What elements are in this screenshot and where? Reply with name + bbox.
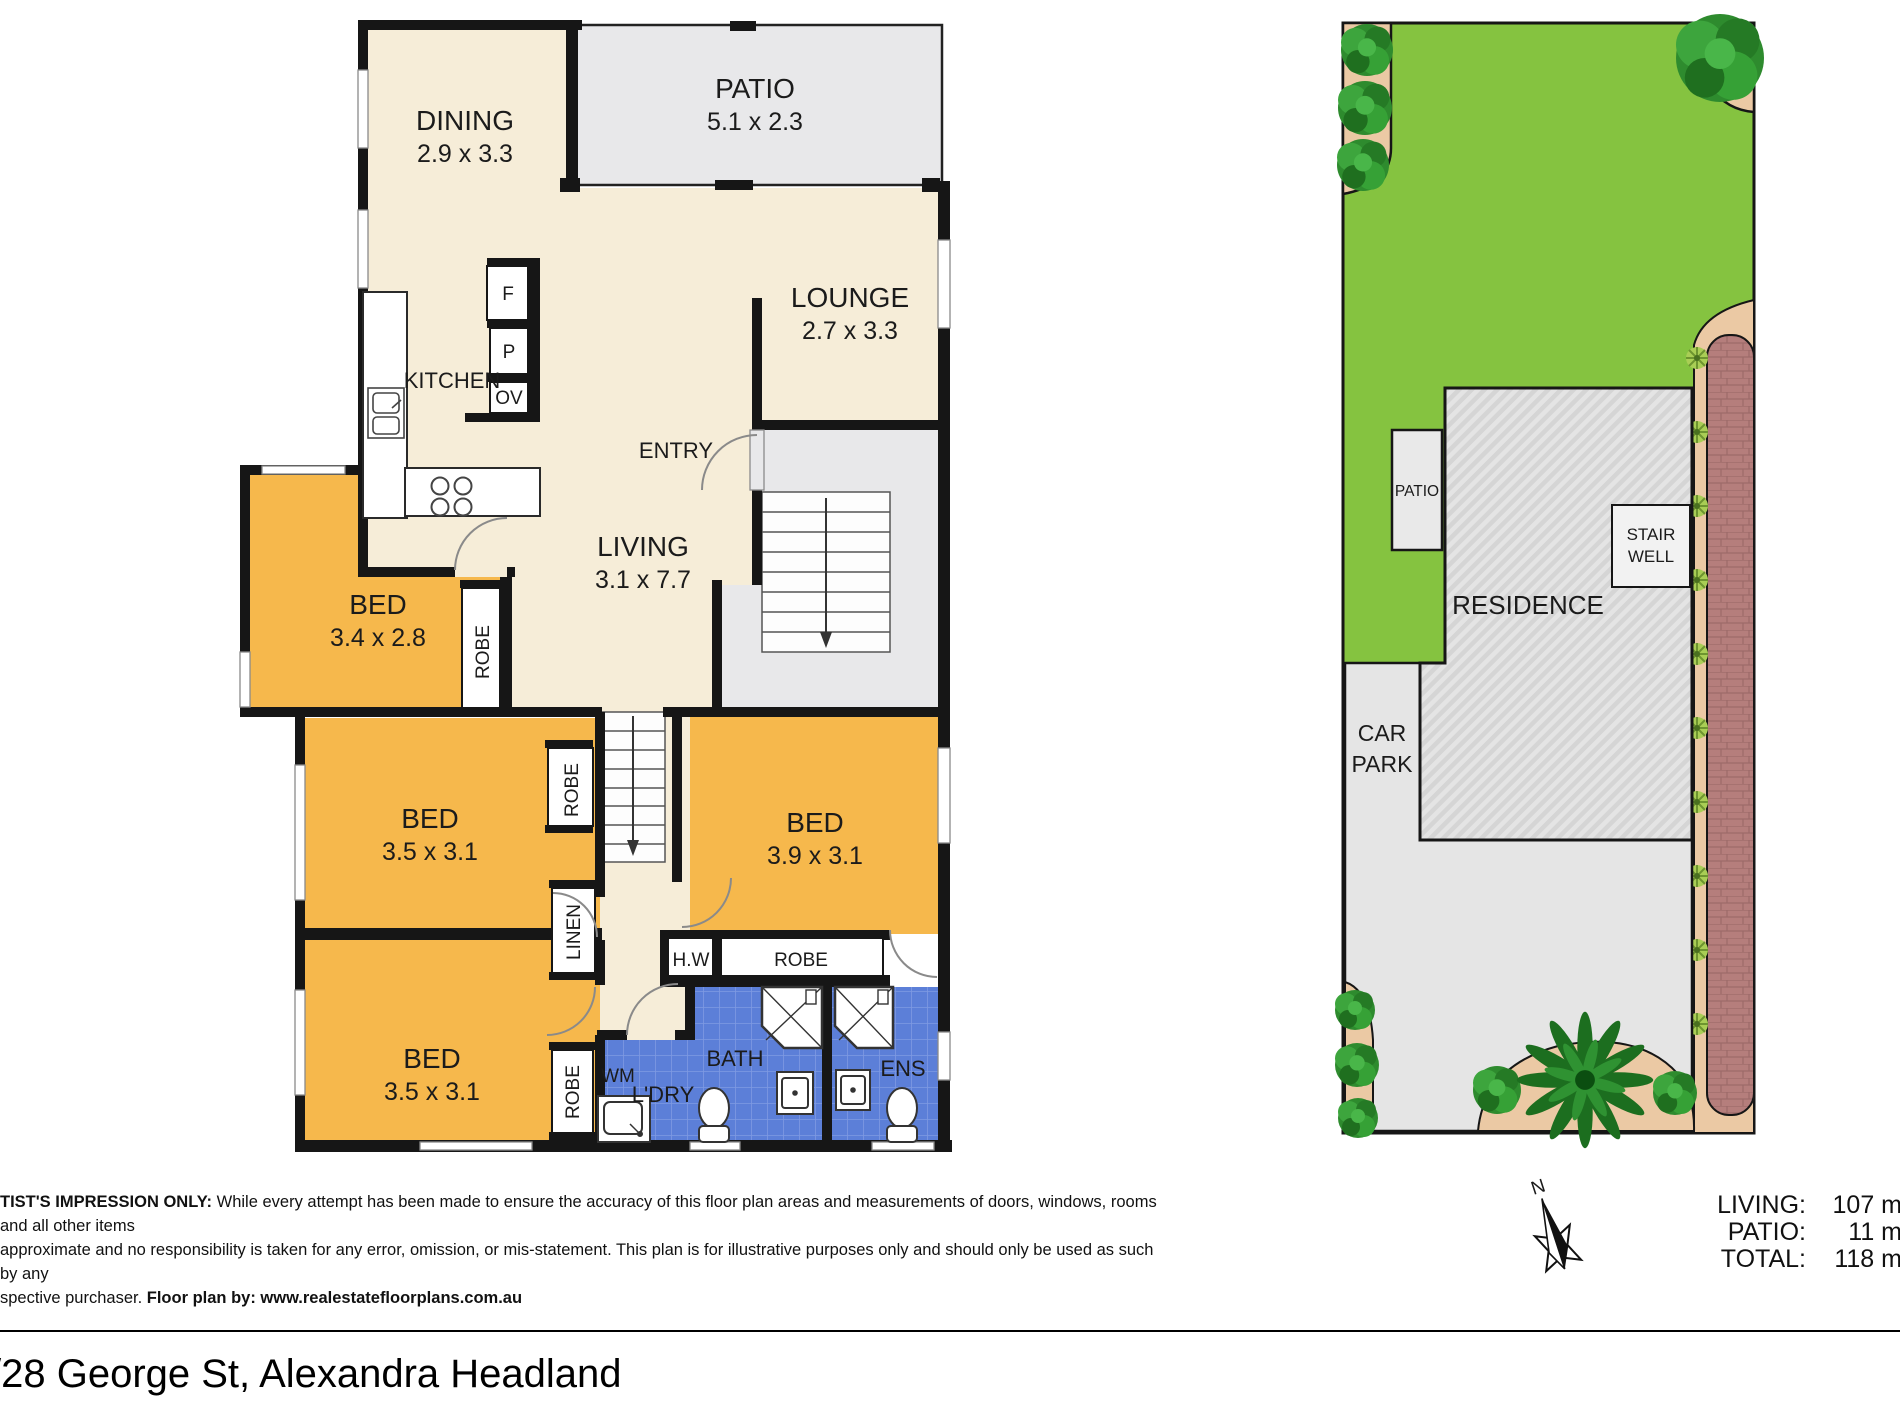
kitchen-sink bbox=[368, 388, 404, 438]
upper-stairs bbox=[762, 492, 890, 652]
address-title: /28 George St, Alexandra Headland bbox=[0, 1352, 622, 1397]
disclaimer-line3-prefix: spective purchaser. bbox=[0, 1289, 147, 1307]
robe-bed4-label: ROBE bbox=[774, 950, 828, 971]
disclaimer-bold-intro: TIST'S IMPRESSION ONLY: bbox=[0, 1193, 212, 1211]
vanity-ens bbox=[836, 1070, 870, 1110]
area-summary: LIVING: 107 m PATIO: 11 m TOTAL: 118 m bbox=[1630, 1192, 1900, 1273]
compass: N bbox=[1500, 1166, 1604, 1294]
patio-floor bbox=[575, 25, 942, 185]
vanity-bath bbox=[777, 1072, 813, 1114]
stairwell-box bbox=[1612, 505, 1690, 587]
patio-label: PATIO bbox=[715, 73, 795, 104]
area-patio-value: 11 m bbox=[1806, 1219, 1900, 1246]
area-total-value: 118 m bbox=[1806, 1246, 1900, 1273]
disclaimer-line2: approximate and no responsibility is tak… bbox=[0, 1241, 1153, 1283]
bed3-label: BED bbox=[403, 1043, 461, 1074]
area-row-patio: PATIO: 11 m bbox=[1630, 1219, 1900, 1246]
bed2-dims: 3.5 x 3.1 bbox=[382, 838, 478, 866]
compass-north-label: N bbox=[1529, 1175, 1549, 1199]
stairwell-label-2: WELL bbox=[1628, 547, 1674, 566]
oven-label: OV bbox=[495, 388, 523, 409]
bed1-label: BED bbox=[349, 589, 407, 620]
robe-bed2-label: ROBE bbox=[562, 763, 583, 817]
area-total-label: TOTAL: bbox=[1721, 1246, 1806, 1273]
wm-label: WM bbox=[601, 1066, 635, 1087]
carpark-label-2: PARK bbox=[1352, 751, 1414, 777]
stairwell-label-1: STAIR bbox=[1627, 525, 1676, 544]
robe-bed3-label: ROBE bbox=[563, 1065, 584, 1119]
ens-label: ENS bbox=[880, 1056, 925, 1081]
patio-dims: 5.1 x 2.3 bbox=[707, 108, 803, 136]
robe-bed1-label: ROBE bbox=[473, 625, 494, 679]
toilet-ens bbox=[887, 1088, 917, 1142]
living-dims: 3.1 x 7.7 bbox=[595, 566, 691, 594]
bed3-dims: 3.5 x 3.1 bbox=[384, 1078, 480, 1106]
lounge-label: LOUNGE bbox=[791, 282, 909, 313]
residence-label: RESIDENCE bbox=[1452, 590, 1604, 620]
laundry-label: L'DRY bbox=[632, 1082, 695, 1107]
toilet-bath bbox=[699, 1088, 729, 1142]
entry-label: ENTRY bbox=[639, 438, 713, 463]
siteplan-patio-label: PATIO bbox=[1395, 483, 1439, 500]
bed1-dims: 3.4 x 2.8 bbox=[330, 624, 426, 652]
living-label: LIVING bbox=[597, 531, 689, 562]
linen-label: LINEN bbox=[564, 904, 585, 960]
carpark-label-1: CAR bbox=[1358, 720, 1407, 746]
floorplan: DINING 2.9 x 3.3 PATIO 5.1 x 2.3 LOUNGE … bbox=[240, 20, 952, 1152]
page: DINING 2.9 x 3.3 PATIO 5.1 x 2.3 LOUNGE … bbox=[0, 0, 1900, 1425]
area-patio-label: PATIO: bbox=[1728, 1219, 1806, 1246]
disclaimer-text: TIST'S IMPRESSION ONLY: While every atte… bbox=[0, 1190, 1160, 1310]
divider-line bbox=[0, 1330, 1900, 1332]
fridge-label: F bbox=[502, 284, 514, 305]
area-row-living: LIVING: 107 m bbox=[1630, 1192, 1900, 1219]
dining-label: DINING bbox=[416, 105, 514, 136]
stair-landing-floor2 bbox=[722, 585, 760, 712]
bath-label: BATH bbox=[706, 1046, 763, 1071]
area-living-label: LIVING: bbox=[1717, 1192, 1806, 1219]
bed4-dims: 3.9 x 3.1 bbox=[767, 842, 863, 870]
disclaimer-line3-bold: Floor plan by: www.realestatefloorplans.… bbox=[147, 1289, 522, 1307]
area-row-total: TOTAL: 118 m bbox=[1630, 1246, 1900, 1273]
pantry-label: P bbox=[503, 342, 516, 363]
brick-path bbox=[1707, 335, 1754, 1115]
bed4-label: BED bbox=[786, 807, 844, 838]
bed2-label: BED bbox=[401, 803, 459, 834]
area-living-value: 107 m bbox=[1806, 1192, 1900, 1219]
hw-label: H.W bbox=[673, 950, 710, 971]
kitchen-label: KITCHEN bbox=[404, 368, 501, 393]
siteplan: PATIO RESIDENCE STAIR WELL CAR PARK bbox=[1335, 14, 1764, 1148]
lounge-dims: 2.7 x 3.3 bbox=[802, 317, 898, 345]
middle-stairs bbox=[602, 712, 665, 862]
dining-dims: 2.9 x 3.3 bbox=[417, 140, 513, 168]
